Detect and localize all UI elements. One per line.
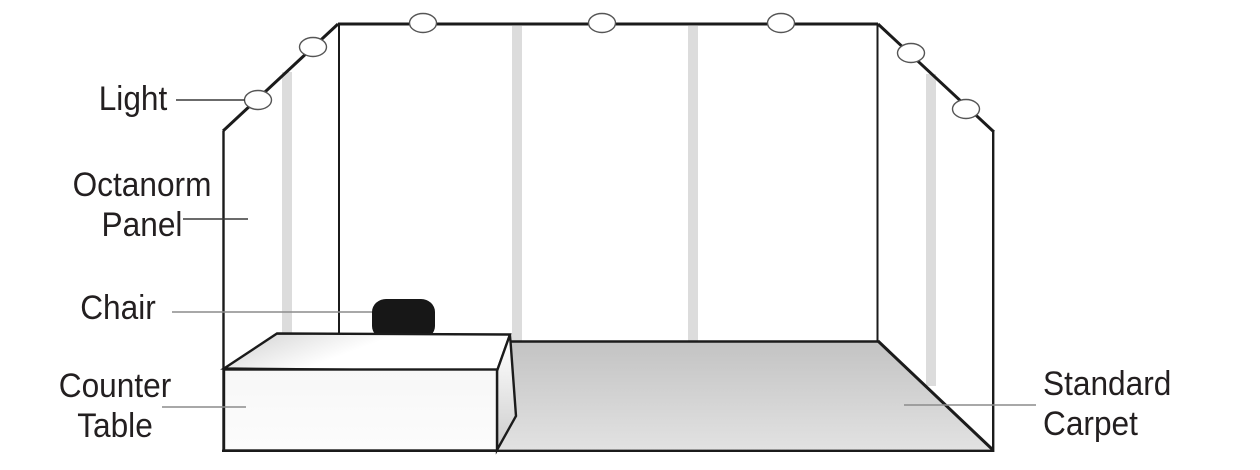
counter-table-label-line2: Table [59, 406, 172, 446]
light-icon [245, 91, 272, 110]
light-icon [953, 100, 980, 119]
chair-label-text: Chair [80, 288, 156, 328]
booth-diagram: Light Octanorm Panel Chair Counter Table… [0, 0, 1260, 470]
counter-table-label-line1: Counter [59, 366, 172, 406]
standard-carpet-label-line1: Standard [1043, 364, 1171, 404]
octanorm-panel-label-line2: Panel [73, 205, 212, 245]
counter-table-top [224, 334, 510, 372]
octanorm-panel-label-line1: Octanorm [73, 165, 212, 205]
back-wall-panel-strip-2 [688, 26, 698, 341]
light-icon [300, 38, 327, 57]
light-icon [589, 14, 616, 33]
standard-carpet-label-line2: Carpet [1043, 404, 1171, 444]
light-icon [410, 14, 437, 33]
light-icon [768, 14, 795, 33]
counter-table-front [224, 370, 497, 451]
left-wall-panel-strip [282, 72, 292, 333]
standard-carpet-label: Standard Carpet [1043, 364, 1181, 444]
chair-label: Chair [77, 288, 158, 328]
octanorm-panel-label: Octanorm Panel [67, 165, 216, 245]
light-label-text: Light [99, 79, 168, 119]
light-label: Light [96, 79, 170, 119]
light-icon [898, 44, 925, 63]
right-wall-panel-strip [926, 74, 936, 386]
back-wall-panel-strip-1 [512, 26, 522, 341]
counter-table-label: Counter Table [55, 366, 176, 446]
